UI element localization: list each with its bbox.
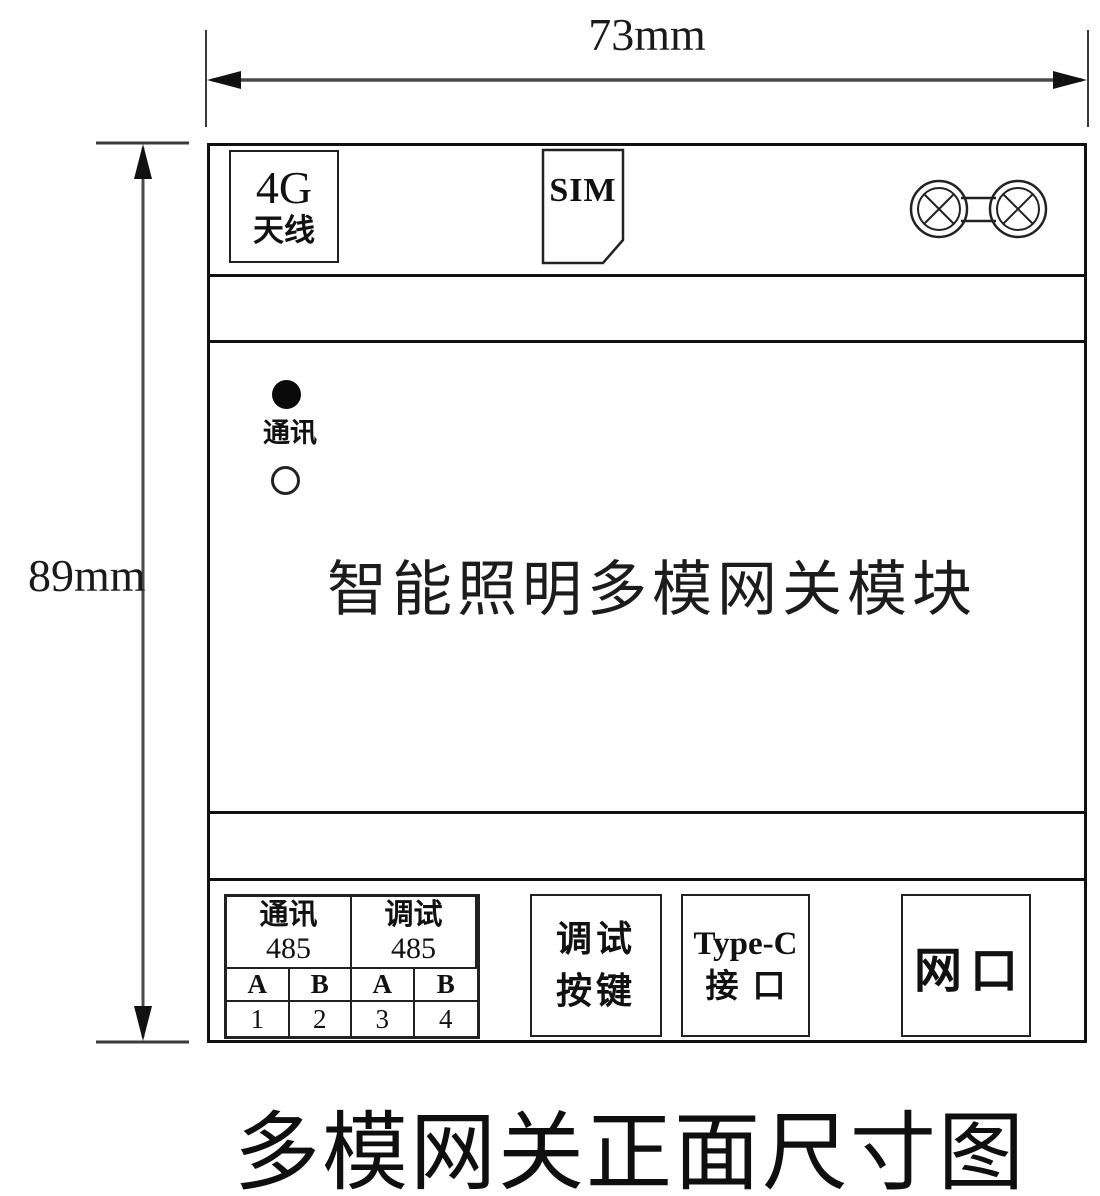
secondary-led-indicator (271, 466, 300, 495)
ethernet-port-label: 网口 (906, 931, 1026, 1001)
comm-led-label: 通讯 (263, 411, 317, 450)
table-number-cell: 2 (290, 1002, 353, 1036)
panel-divider-top-1 (209, 274, 1085, 277)
comm-led-on-indicator (272, 380, 301, 409)
panel-divider-bottom-2 (209, 878, 1085, 881)
table-group-comm-485: 通讯 485 (227, 897, 352, 969)
table-pin-cell: B (415, 969, 478, 1002)
table-number-cell: 4 (415, 1002, 478, 1036)
sim-slot-label: SIM (543, 172, 623, 210)
height-dimension-label: 89mm (28, 549, 146, 602)
debug-button-box: 调试 按键 (530, 894, 662, 1037)
module-title: 智能照明多模网关模块 (327, 541, 977, 628)
table-group-label: 通讯 (259, 899, 317, 932)
debug-button-line2: 按键 (556, 966, 636, 1017)
typec-port-line2: 接口 (692, 966, 800, 1009)
antenna-4g-line1: 4G (256, 164, 312, 212)
table-pin-cell: B (290, 969, 353, 1002)
table-pin-cell: A (352, 969, 415, 1002)
table-number-cell: 1 (227, 1002, 290, 1036)
table-number-cell: 3 (352, 1002, 415, 1036)
width-dimension-arrowheads (207, 71, 1087, 89)
typec-port-line1: Type-C (694, 923, 798, 966)
table-group-label: 调试 (384, 899, 442, 932)
table-pin-cell: A (227, 969, 290, 1002)
terminal-485-table: 通讯 485 调试 485 A B A B 1 2 3 4 (224, 894, 480, 1039)
typec-port-box: Type-C 接口 (681, 894, 810, 1037)
dimension-drawing-page: 73mm 89mm 4G 天线 SIM 通讯 智能照明多模网关模块 通讯 485… (0, 0, 1100, 1196)
ethernet-port-box: 网口 (901, 894, 1031, 1037)
table-group-debug-485: 调试 485 (352, 897, 477, 969)
antenna-4g-line2: 天线 (253, 212, 315, 249)
drawing-caption: 多模网关正面尺寸图 (234, 1082, 1026, 1196)
panel-divider-bottom-1 (209, 811, 1085, 814)
width-dimension-label: 73mm (588, 8, 706, 61)
table-group-sublabel: 485 (391, 932, 436, 965)
antenna-4g-box: 4G 天线 (229, 150, 339, 263)
table-group-sublabel: 485 (266, 932, 311, 965)
panel-divider-top-2 (209, 340, 1085, 343)
debug-button-line1: 调试 (556, 914, 636, 965)
